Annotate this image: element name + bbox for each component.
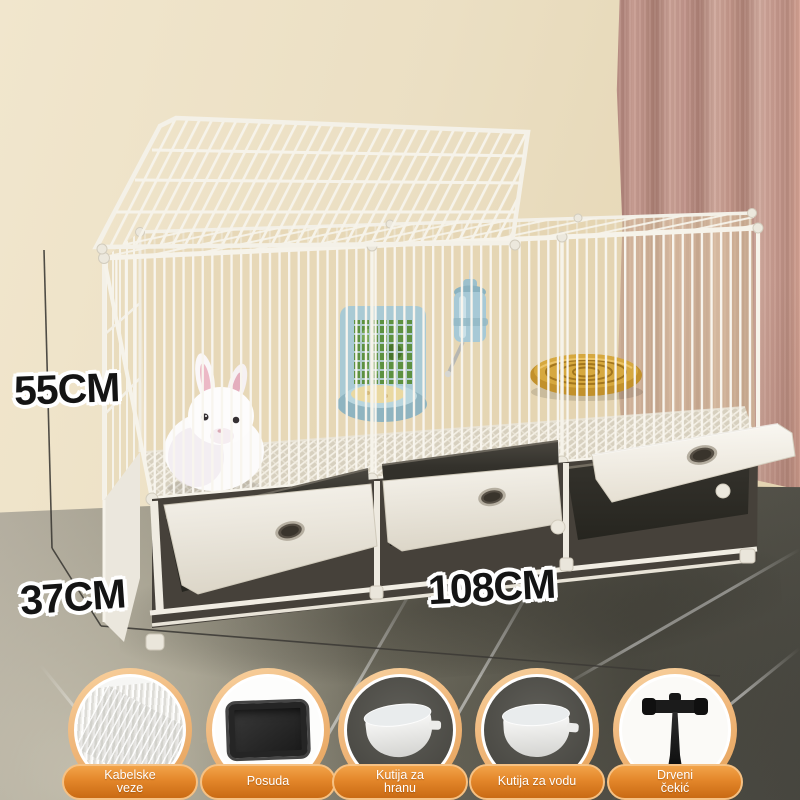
lid-hinge-clip	[510, 240, 520, 250]
height-dimension-label: 55CM	[13, 364, 120, 415]
accessory-label-cable-ties: Kabelske veze	[62, 764, 198, 800]
accessory-label-water-box: Kutija za vodu	[469, 764, 605, 800]
accessory-label-food-box: Kutija za hranu	[332, 764, 468, 800]
product-photo: 55CM 37CM 108CM	[0, 0, 800, 800]
accessory-label-hammer: Drveni čekić	[607, 764, 743, 800]
open-lid	[96, 118, 528, 254]
lid-hinge-clip	[97, 244, 107, 254]
accessory-label-tray: Posuda	[200, 764, 336, 800]
width-dimension-label: 108CM	[427, 561, 556, 615]
depth-dimension-label: 37CM	[18, 570, 126, 624]
